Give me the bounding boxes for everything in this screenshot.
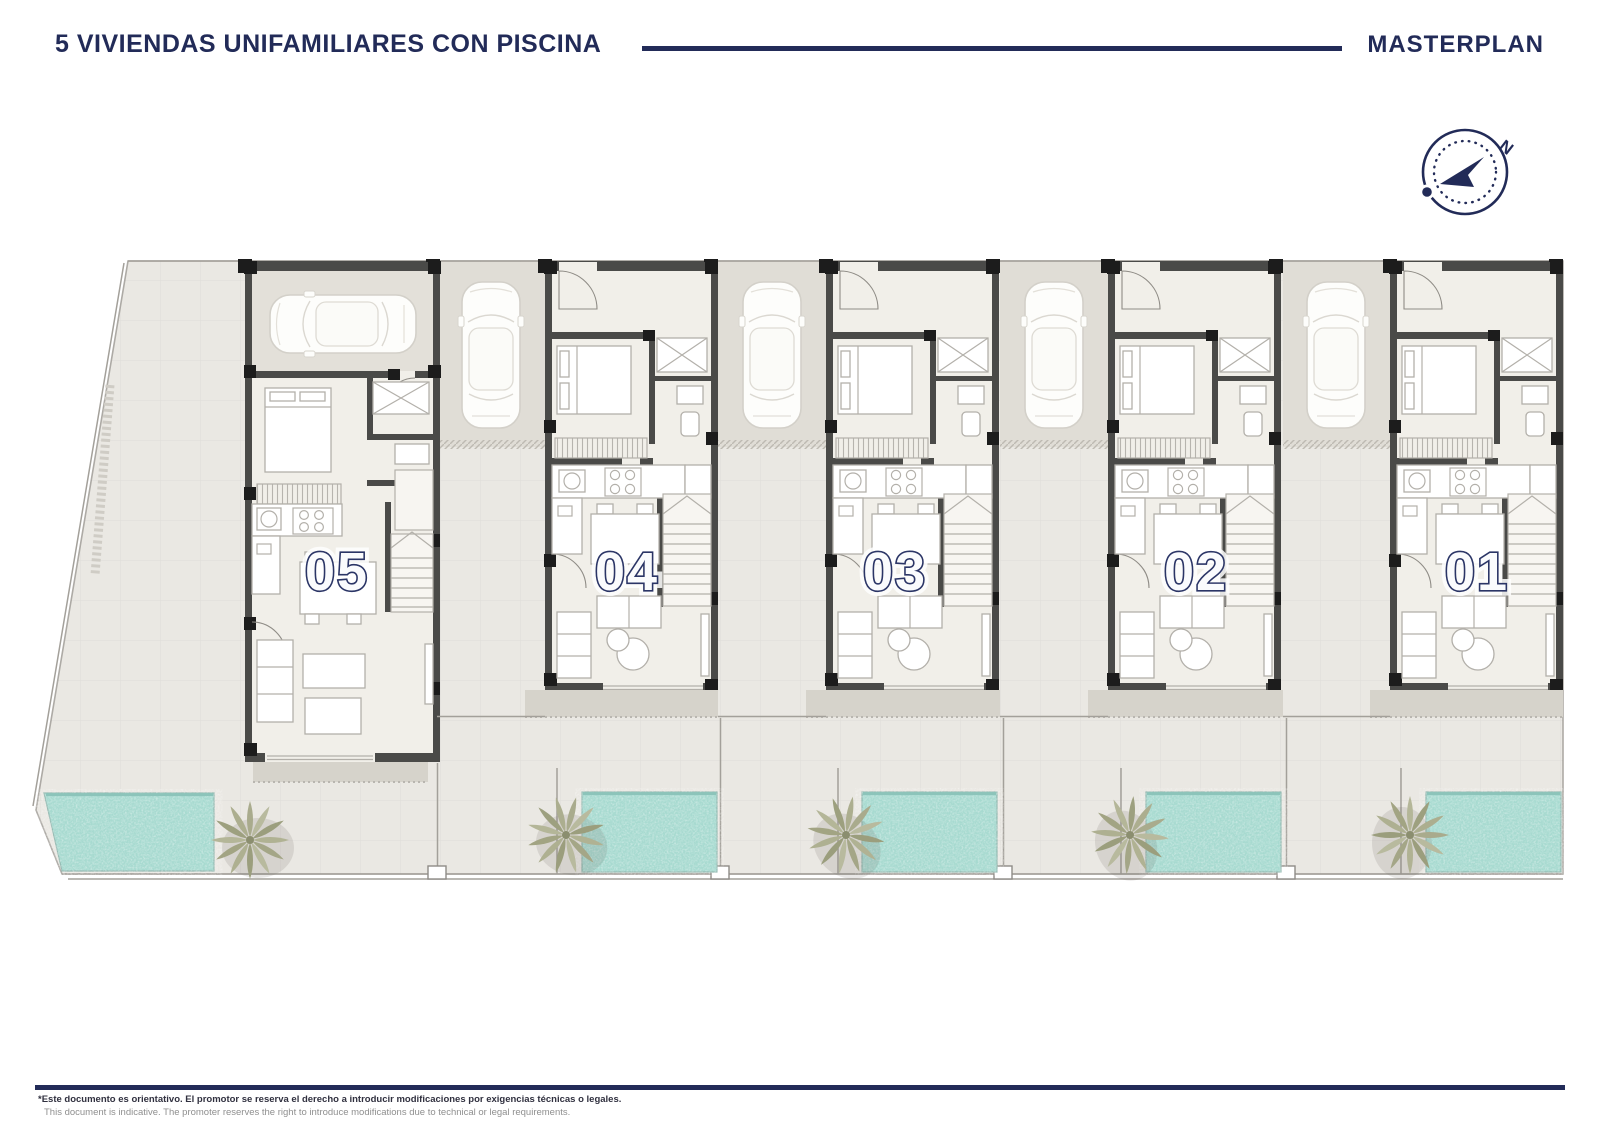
house-unit-04: [544, 261, 718, 692]
footer-divider: [35, 1085, 1565, 1090]
driveway-02: [1000, 262, 1108, 449]
unit-label-03[interactable]: 03: [863, 542, 927, 602]
house-unit-05: [244, 261, 441, 762]
masterplan-page: 5 VIVIENDAS UNIFAMILIARES CON PISCINA MA…: [0, 0, 1600, 1131]
car-icon-03: [739, 282, 805, 428]
house-unit-02: [1107, 261, 1281, 692]
driveway-03: [718, 262, 826, 449]
pool-05: [44, 793, 214, 871]
car-icon-05: [270, 291, 416, 357]
pool-03: [862, 792, 997, 872]
driveway-04: [437, 262, 545, 449]
driveway-01: [1283, 262, 1390, 449]
unit-label-04[interactable]: 04: [595, 542, 659, 602]
car-icon-01: [1303, 282, 1369, 428]
disclaimer-spanish: *Este documento es orientativo. El promo…: [38, 1094, 621, 1105]
unit-label-05[interactable]: 05: [305, 542, 369, 602]
site-plan: 05 05 04 04 03 03 02 02 01 01: [0, 0, 1600, 1131]
house-unit-03: [825, 261, 999, 692]
car-icon-02: [1021, 282, 1087, 428]
pool-01: [1426, 792, 1561, 872]
garden-gate-05: [428, 866, 446, 879]
unit-label-02[interactable]: 02: [1164, 542, 1228, 602]
car-icon-04: [458, 282, 524, 428]
unit-label-01[interactable]: 01: [1445, 542, 1509, 602]
pool-02: [1146, 792, 1281, 872]
disclaimer-english: This document is indicative. The promote…: [44, 1107, 570, 1118]
house-unit-01: [1389, 261, 1563, 692]
